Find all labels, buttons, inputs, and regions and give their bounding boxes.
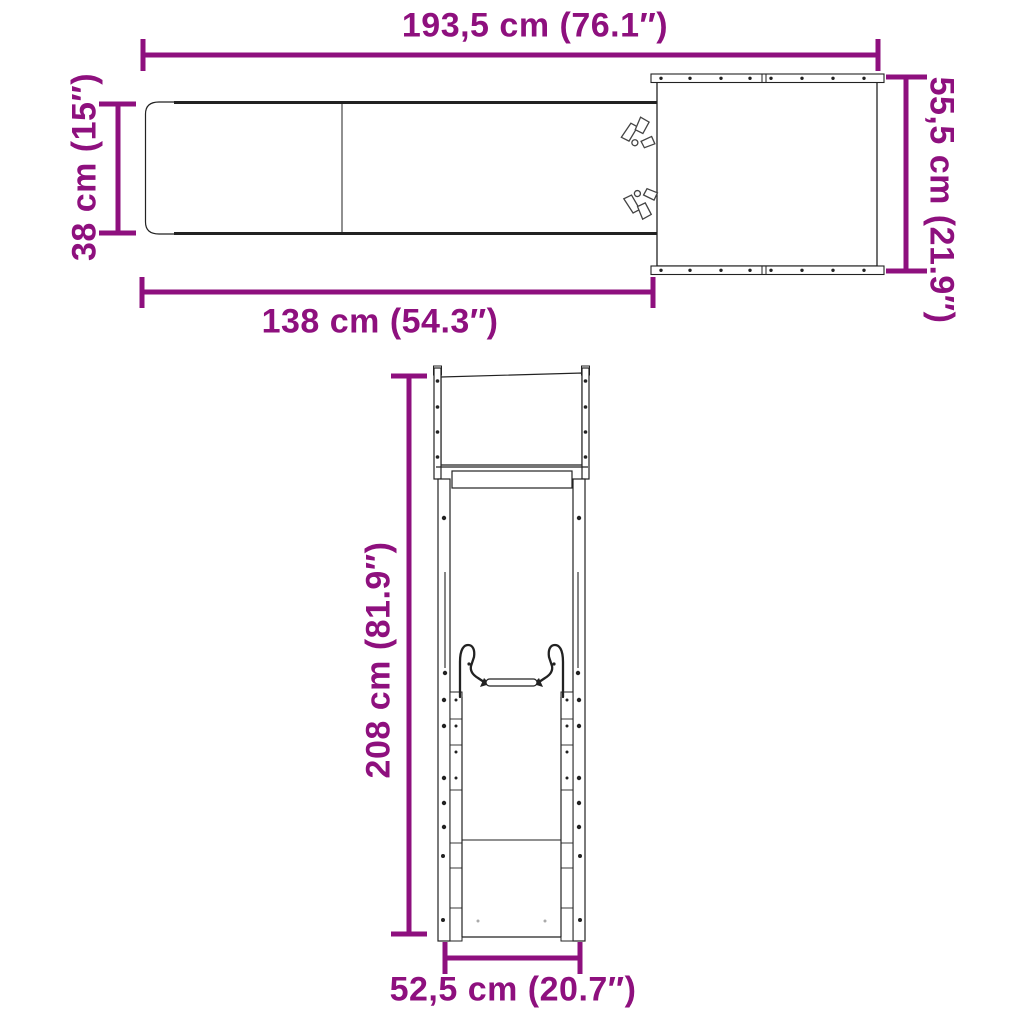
tower-front-view [434, 366, 590, 941]
slide-handles [460, 645, 563, 697]
technical-drawing [0, 0, 1024, 1024]
dimension-label-slide-width: 38 cm (15″) [66, 73, 105, 261]
dimension-line-frame-width [445, 942, 580, 974]
dimension-label-frame-width: 52,5 cm (20.7″) [390, 971, 637, 1010]
decor-figure-icon [621, 115, 658, 148]
product-dimension-diagram: 193,5 cm (76.1″) 38 cm (15″) 55,5 cm (21… [0, 0, 1024, 1024]
dimension-label-overall-height: 208 cm (81.9″) [360, 542, 399, 779]
decor-figure-icon [623, 188, 659, 221]
slide-front-view [460, 645, 563, 937]
platform-top-view [651, 74, 884, 275]
dimension-line-slide-width [99, 104, 136, 233]
front-view-drawing [391, 366, 590, 974]
plate-joints [450, 719, 573, 908]
dimension-label-overall-length: 193,5 cm (76.1″) [402, 7, 668, 46]
top-view-drawing [99, 39, 927, 308]
dimension-lines-front-view [391, 376, 580, 974]
dimension-label-platform-depth: 55,5 cm (21.9″) [922, 77, 961, 324]
slide-top-view [146, 102, 658, 234]
dimension-label-slide-length: 138 cm (54.3″) [262, 303, 499, 342]
